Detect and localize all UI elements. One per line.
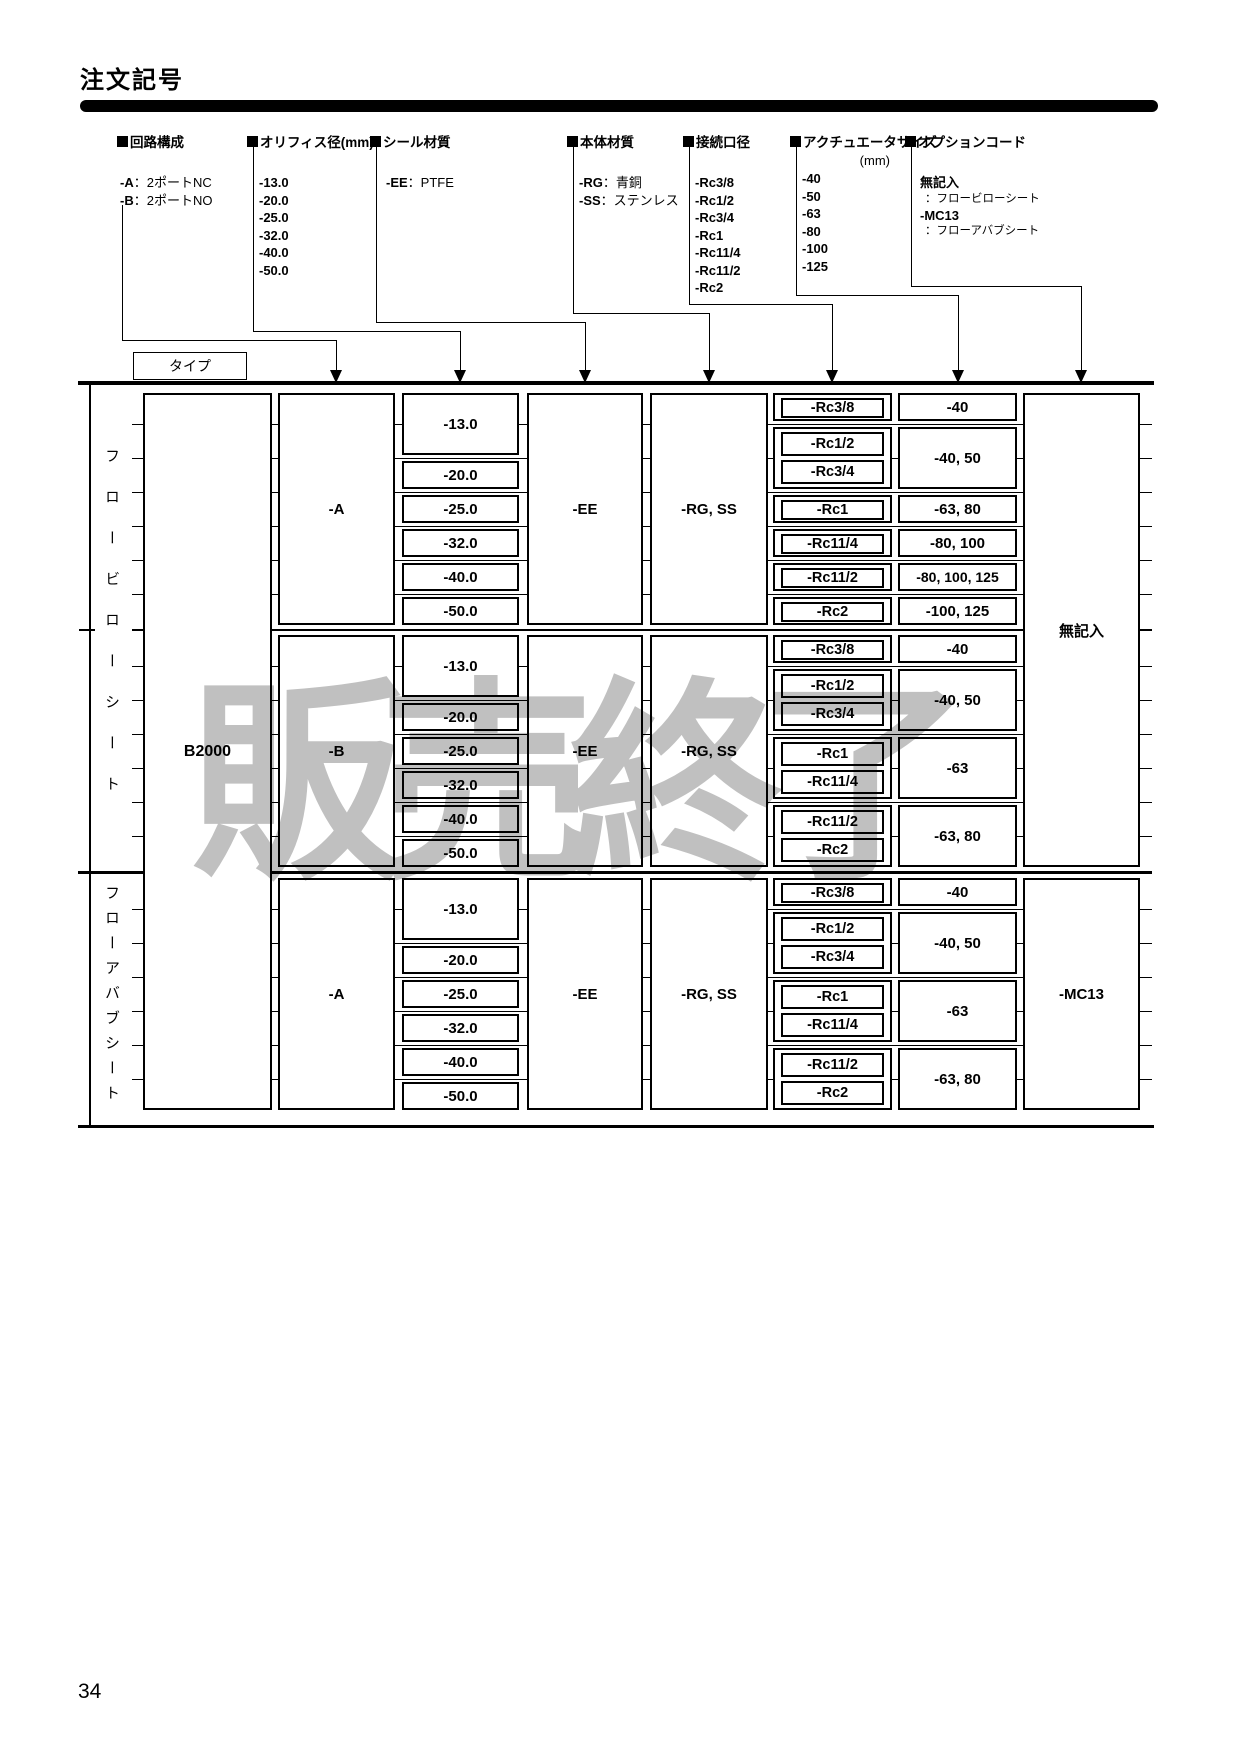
legend-item: -125	[802, 258, 937, 276]
leader-line	[336, 340, 337, 372]
port-cell: -Rc3/4	[781, 945, 884, 969]
leader-line	[958, 295, 959, 372]
port-group: -Rc1/2 -Rc3/4	[773, 912, 892, 974]
legend-item: -B：2ポートNO	[120, 192, 212, 210]
legend-heading-label: オリフィス径(mm)	[260, 131, 374, 151]
actuator-cell: -100, 125	[898, 597, 1017, 625]
leader-line	[689, 304, 832, 305]
port-cell: -Rc1/2	[781, 432, 884, 456]
port-cell: -Rc3/8	[781, 398, 884, 418]
axis-tick	[79, 629, 95, 631]
leader-line	[1081, 286, 1082, 372]
port-cell: -Rc1/2	[781, 917, 884, 941]
legend-item: -40.0	[259, 244, 374, 262]
page-number: 34	[78, 1680, 101, 1704]
legend-heading-label: オプションコード	[918, 131, 1026, 151]
port-group: -Rc1 -Rc11/4	[773, 980, 892, 1042]
leader-line	[253, 331, 460, 332]
actuator-cell: -63, 80	[898, 1048, 1017, 1110]
port-group: -Rc3/8	[773, 393, 892, 421]
option-cell: -MC13	[1023, 878, 1140, 1110]
legend-heading-label: シール材質	[383, 131, 451, 151]
legend-item: -Rc2	[695, 279, 750, 297]
port-group: -Rc11/4	[773, 529, 892, 557]
actuator-cell: -63, 80	[898, 495, 1017, 523]
section-divider	[132, 629, 1152, 631]
orifice-cell: -13.0	[402, 393, 519, 455]
legend-item: -100	[802, 240, 937, 258]
actuator-cell: -40	[898, 393, 1017, 421]
legend-item: -Rc3/8	[695, 174, 750, 192]
orifice-cell: -40.0	[402, 1048, 519, 1076]
port-cell: -Rc11/4	[781, 534, 884, 554]
type-label-box: タイプ	[133, 352, 247, 380]
orifice-cell: -50.0	[402, 597, 519, 625]
square-bullet-icon	[247, 136, 258, 147]
legend-column-port: 接続口径 -Rc3/8 -Rc1/2 -Rc3/4 -Rc1 -Rc11/4 -…	[683, 131, 750, 297]
legend-heading-label: 回路構成	[130, 131, 184, 151]
square-bullet-icon	[370, 136, 381, 147]
actuator-cell: -63	[898, 980, 1017, 1042]
leader-line	[911, 147, 912, 286]
catalog-page: 注文記号 回路構成 -A：2ポートNC -B：2ポートNO オリフィス径(mm)…	[0, 0, 1240, 1754]
legend-item: -Rc1	[695, 227, 750, 245]
port-group: -Rc3/8	[773, 635, 892, 663]
body-cell: -RG, SS	[650, 878, 768, 1110]
orifice-cell: -25.0	[402, 980, 519, 1008]
legend-heading: 本体材質	[567, 131, 679, 151]
legend-column-seal: シール材質 -EE：PTFE	[370, 131, 454, 192]
orifice-cell: -50.0	[402, 1082, 519, 1110]
legend-item: -20.0	[259, 192, 374, 210]
leader-line	[460, 331, 461, 372]
square-bullet-icon	[905, 136, 916, 147]
actuator-cell: -80, 100, 125	[898, 563, 1017, 591]
square-bullet-icon	[117, 136, 128, 147]
seal-cell: -EE	[527, 878, 643, 1110]
unit-label: (mm)	[790, 153, 890, 168]
port-group: -Rc1	[773, 495, 892, 523]
port-group: -Rc11/2 -Rc2	[773, 1048, 892, 1110]
seal-cell: -EE	[527, 393, 643, 625]
leader-line	[585, 322, 586, 372]
port-cell: -Rc11/4	[781, 1013, 884, 1037]
square-bullet-icon	[683, 136, 694, 147]
leader-line	[376, 322, 585, 323]
actuator-cell: -80, 100	[898, 529, 1017, 557]
port-cell: -Rc1	[781, 985, 884, 1009]
legend-item: -25.0	[259, 209, 374, 227]
circuit-cell: -A	[278, 393, 395, 625]
body-cell: -RG, SS	[650, 393, 768, 625]
orifice-cell: -32.0	[402, 529, 519, 557]
actuator-cell: -40, 50	[898, 427, 1017, 489]
leader-line	[253, 147, 254, 331]
legend-item: -32.0	[259, 227, 374, 245]
legend-item: -Rc11/4	[695, 244, 750, 262]
port-group: -Rc2	[773, 597, 892, 625]
leader-line	[832, 304, 833, 372]
orifice-cell: -32.0	[402, 1014, 519, 1042]
discontinued-watermark: 販売終了	[190, 672, 946, 898]
orifice-cell: -20.0	[402, 946, 519, 974]
actuator-cell: -40	[898, 635, 1017, 663]
port-cell: -Rc2	[781, 1081, 884, 1105]
group-label-flow-below-seat: フロービローシート	[94, 446, 122, 818]
orifice-cell: -20.0	[402, 461, 519, 489]
port-group: -Rc1/2 -Rc3/4	[773, 427, 892, 489]
square-bullet-icon	[790, 136, 801, 147]
page-title: 注文記号	[80, 60, 184, 95]
legend-item: -Rc11/2	[695, 262, 750, 280]
legend-heading: オリフィス径(mm)	[247, 131, 374, 151]
port-group: -Rc11/2	[773, 563, 892, 591]
circuit-cell: -A	[278, 878, 395, 1110]
legend-heading: 回路構成	[117, 131, 212, 151]
actuator-cell: -40, 50	[898, 912, 1017, 974]
legend-item: -EE：PTFE	[386, 174, 454, 192]
port-cell: -Rc2	[781, 602, 884, 622]
legend-item: -Rc1/2	[695, 192, 750, 210]
legend-heading-label: 接続口径	[696, 131, 750, 151]
port-cell: -Rc3/8	[781, 640, 884, 660]
leader-line	[689, 147, 690, 304]
legend-heading: シール材質	[370, 131, 454, 151]
port-cell: -Rc11/2	[781, 568, 884, 588]
leader-line	[709, 313, 710, 372]
legend-item: -Rc3/4	[695, 209, 750, 227]
type-label: タイプ	[169, 356, 211, 376]
leader-line	[796, 295, 958, 296]
leader-line	[911, 286, 1081, 287]
legend-item: -MC13：フローアバブシート	[920, 207, 1040, 240]
legend-heading: 接続口径	[683, 131, 750, 151]
legend-item: -A：2ポートNC	[120, 174, 212, 192]
orifice-cell: -25.0	[402, 495, 519, 523]
square-bullet-icon	[567, 136, 578, 147]
legend-heading: オプションコード	[905, 131, 1040, 151]
legend-item: -RG：青銅	[579, 174, 679, 192]
leader-line	[376, 147, 377, 322]
legend-item: -50.0	[259, 262, 374, 280]
legend-column-orifice: オリフィス径(mm) -13.0 -20.0 -25.0 -32.0 -40.0…	[247, 131, 374, 279]
legend-item: 無記入：フロービローシート	[920, 174, 1040, 207]
group-label-flow-above-seat: フローアバブシート	[94, 882, 122, 1112]
legend-column-option: オプションコード 無記入：フロービローシート -MC13：フローアバブシート	[905, 131, 1040, 239]
legend-column-circuit: 回路構成 -A：2ポートNC -B：2ポートNO	[117, 131, 212, 209]
legend-column-body: 本体材質 -RG：青銅 -SS：ステンレス	[567, 131, 679, 209]
legend-item: -SS：ステンレス	[579, 192, 679, 210]
leader-line	[573, 147, 574, 313]
leader-line	[573, 313, 709, 314]
legend-item: -13.0	[259, 174, 374, 192]
port-cell: -Rc11/2	[781, 1053, 884, 1077]
port-cell: -Rc1	[781, 500, 884, 520]
leader-line	[122, 340, 337, 341]
option-cell: 無記入	[1023, 393, 1140, 867]
leader-line	[122, 205, 123, 340]
leader-line	[796, 147, 797, 295]
legend-heading-label: 本体材質	[580, 131, 634, 151]
axis-line	[89, 384, 91, 1127]
port-cell: -Rc3/4	[781, 460, 884, 484]
title-rule	[80, 100, 1158, 112]
orifice-cell: -40.0	[402, 563, 519, 591]
